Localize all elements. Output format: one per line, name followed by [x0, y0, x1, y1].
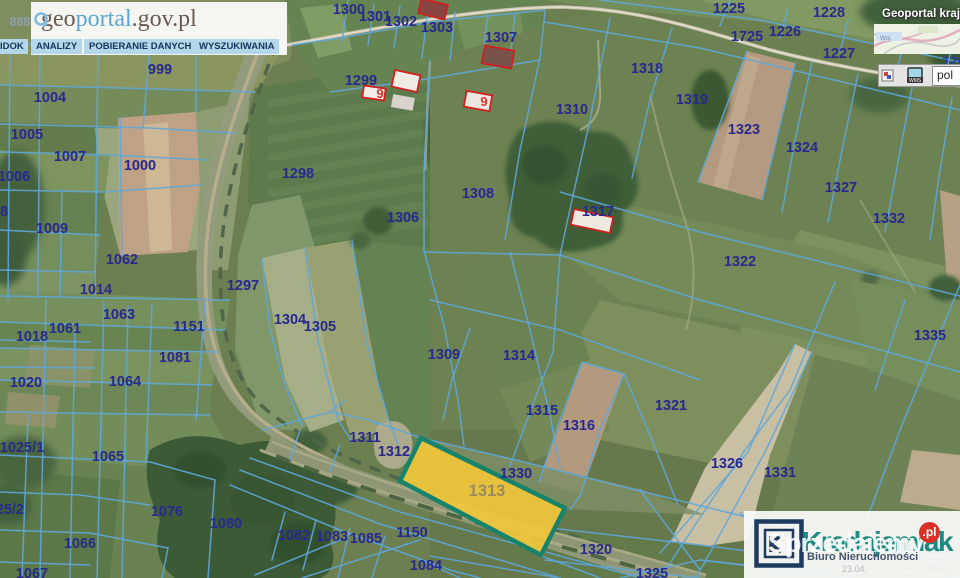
svg-text:1327: 1327 — [825, 180, 857, 196]
svg-text:1299: 1299 — [345, 73, 377, 89]
svg-text:1311: 1311 — [349, 430, 380, 446]
svg-text:1062: 1062 — [106, 252, 138, 268]
svg-text:1150: 1150 — [396, 525, 427, 541]
svg-text:1321: 1321 — [655, 398, 687, 414]
svg-text:1083: 1083 — [316, 529, 348, 545]
svg-text:1309: 1309 — [428, 347, 460, 363]
svg-text:1304: 1304 — [274, 312, 306, 328]
svg-text:1226: 1226 — [769, 24, 801, 40]
svg-text:1308: 1308 — [462, 186, 494, 202]
svg-text:1332: 1332 — [873, 211, 905, 227]
svg-text:1310: 1310 — [556, 102, 588, 118]
svg-text:1004: 1004 — [34, 90, 66, 106]
svg-text:1000: 1000 — [124, 158, 156, 174]
svg-text:1315: 1315 — [526, 403, 558, 419]
svg-text:1303: 1303 — [421, 20, 453, 36]
svg-text:25/2: 25/2 — [0, 502, 24, 518]
svg-text:8: 8 — [0, 204, 8, 220]
svg-text:9: 9 — [376, 86, 383, 101]
svg-text:1061: 1061 — [49, 321, 81, 337]
svg-text:1009: 1009 — [36, 221, 68, 237]
svg-text:1076: 1076 — [151, 504, 183, 520]
svg-text:1322: 1322 — [724, 254, 756, 270]
svg-text:1320: 1320 — [580, 542, 612, 558]
svg-text:1063: 1063 — [103, 307, 135, 323]
svg-text:1025/1: 1025/1 — [0, 440, 44, 456]
svg-text:1313: 1313 — [469, 482, 506, 500]
svg-text:1151: 1151 — [173, 319, 204, 335]
svg-text:Woj.: Woj. — [880, 36, 892, 42]
svg-text:1316: 1316 — [563, 418, 595, 434]
svg-text:1085: 1085 — [350, 531, 382, 547]
svg-text:1335: 1335 — [914, 328, 946, 344]
svg-text:1307: 1307 — [485, 30, 517, 46]
svg-text:1302: 1302 — [385, 14, 417, 30]
svg-text:1298: 1298 — [282, 166, 314, 182]
svg-text:1314: 1314 — [503, 348, 535, 364]
svg-text:1297: 1297 — [227, 278, 259, 294]
svg-text:1006: 1006 — [0, 169, 30, 185]
svg-text:1318: 1318 — [631, 61, 663, 77]
svg-text:1065: 1065 — [92, 449, 124, 465]
svg-text:1014: 1014 — [80, 282, 112, 298]
svg-text:1312: 1312 — [378, 444, 410, 460]
svg-text:1066: 1066 — [64, 536, 96, 552]
svg-text:1317: 1317 — [582, 204, 614, 220]
svg-text:1067: 1067 — [16, 566, 48, 578]
svg-text:1228: 1228 — [813, 5, 845, 21]
svg-text:1064: 1064 — [109, 374, 141, 390]
svg-text:999: 999 — [148, 62, 172, 78]
svg-text:1080: 1080 — [210, 516, 242, 532]
svg-text:1007: 1007 — [54, 149, 86, 165]
svg-text:1725: 1725 — [731, 29, 763, 45]
svg-text:1082: 1082 — [278, 528, 310, 544]
svg-text:1325: 1325 — [636, 566, 668, 578]
svg-text:1084: 1084 — [410, 558, 442, 574]
svg-text:1227: 1227 — [823, 46, 855, 62]
svg-text:1326: 1326 — [711, 456, 743, 472]
svg-text:1330: 1330 — [500, 466, 532, 482]
svg-text:1005: 1005 — [11, 127, 43, 143]
svg-text:1323: 1323 — [728, 122, 760, 138]
svg-text:1331: 1331 — [764, 465, 796, 481]
svg-text:1319: 1319 — [676, 92, 708, 108]
svg-text:1020: 1020 — [10, 375, 42, 391]
svg-text:9: 9 — [480, 94, 487, 109]
svg-text:1225: 1225 — [713, 1, 745, 17]
svg-text:1305: 1305 — [304, 319, 336, 335]
svg-text:WMS: WMS — [909, 78, 922, 84]
svg-text:1081: 1081 — [159, 350, 191, 366]
svg-text:1306: 1306 — [387, 210, 419, 226]
svg-text:1018: 1018 — [16, 329, 48, 345]
svg-text:888: 888 — [10, 15, 31, 29]
svg-text:1324: 1324 — [786, 140, 818, 156]
